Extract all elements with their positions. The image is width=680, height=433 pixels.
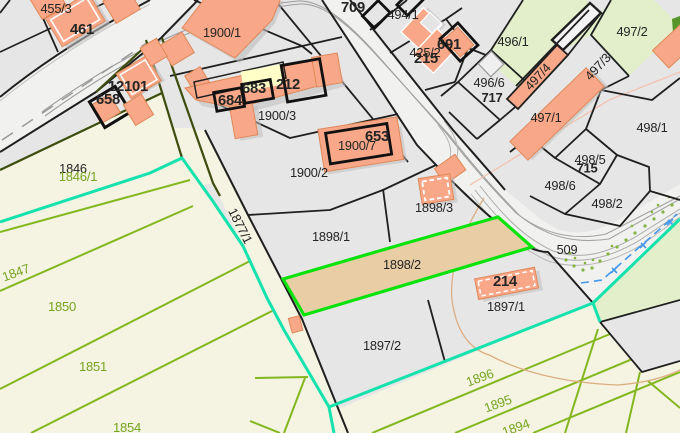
svg-text:498/1: 498/1 <box>636 120 667 135</box>
svg-text:1898/2: 1898/2 <box>383 257 421 272</box>
svg-text:494/1: 494/1 <box>387 7 418 22</box>
svg-text:683: 683 <box>242 81 266 97</box>
svg-text:715: 715 <box>576 161 597 176</box>
svg-text:455/3: 455/3 <box>40 1 71 16</box>
svg-text:509: 509 <box>557 242 578 257</box>
svg-text:717: 717 <box>481 90 502 105</box>
svg-text:496/6: 496/6 <box>473 75 504 90</box>
svg-text:1854: 1854 <box>113 420 141 433</box>
svg-text:498/6: 498/6 <box>544 178 575 193</box>
svg-text:1900/3: 1900/3 <box>258 108 296 123</box>
svg-text:1851: 1851 <box>79 359 107 374</box>
svg-text:461: 461 <box>70 22 94 38</box>
svg-text:496/1: 496/1 <box>497 34 528 49</box>
svg-text:684: 684 <box>218 93 243 109</box>
svg-text:1897/2: 1897/2 <box>363 338 401 353</box>
svg-text:658: 658 <box>96 92 120 108</box>
svg-text:497/2: 497/2 <box>616 24 647 39</box>
svg-text:1900/1: 1900/1 <box>203 25 241 40</box>
svg-text:1900/2: 1900/2 <box>290 165 328 180</box>
svg-text:1897/1: 1897/1 <box>487 299 525 314</box>
svg-text:214: 214 <box>493 274 518 290</box>
svg-text:1900/7: 1900/7 <box>338 138 376 153</box>
svg-text:1898/3: 1898/3 <box>415 200 453 215</box>
svg-text:215: 215 <box>414 51 438 67</box>
svg-text:1850: 1850 <box>48 299 76 314</box>
svg-text:212: 212 <box>276 77 300 93</box>
svg-text:709: 709 <box>341 0 365 16</box>
svg-text:1898/1: 1898/1 <box>312 229 350 244</box>
svg-text:691: 691 <box>437 37 461 53</box>
svg-text:1846/1: 1846/1 <box>59 169 98 184</box>
svg-text:498/2: 498/2 <box>591 196 622 211</box>
svg-text:497/1: 497/1 <box>530 110 561 125</box>
